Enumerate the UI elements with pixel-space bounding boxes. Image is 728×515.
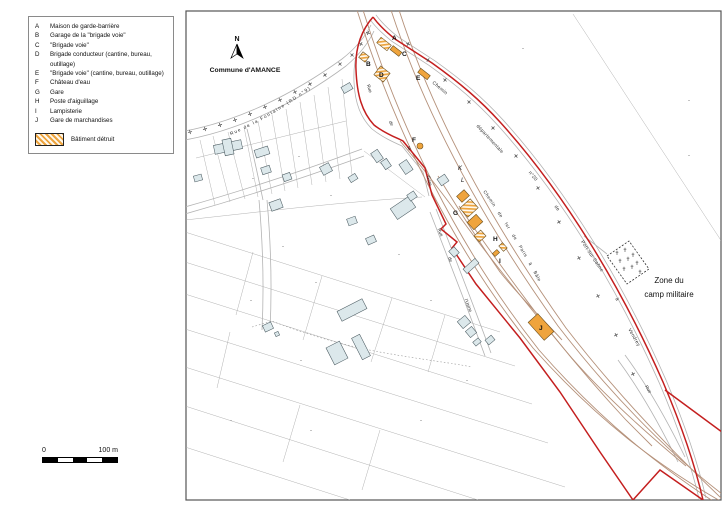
marker-H: H (493, 236, 498, 243)
destroyed-hatch-swatch (35, 133, 64, 146)
legend-key: D (35, 50, 50, 59)
marker-L: L (461, 178, 464, 184)
legend-label: Maison de garde-barrière (50, 22, 169, 31)
legend-box: AMaison de garde-barrière BGarage de la … (28, 16, 174, 154)
legend-key: I (35, 107, 50, 116)
legend-item: BGarage de la "brigade voie" (35, 31, 169, 40)
destroyed-label: Bâtiment détruit (71, 136, 114, 143)
zone-camp-line2: camp militaire (644, 290, 694, 299)
legend-item: AMaison de garde-barrière (35, 22, 169, 31)
legend-label: Poste d'aiguillage (50, 97, 169, 106)
zone-camp-line1: Zone du (654, 276, 683, 285)
legend-item: JGare de marchandises (35, 116, 169, 125)
scale-bar: 0 100 m (42, 447, 118, 463)
legend-key: A (35, 22, 50, 31)
legend-item: HPoste d'aiguillage (35, 97, 169, 106)
legend-key: G (35, 88, 50, 97)
legend-item: C"Brigade voie" (35, 41, 169, 50)
legend-label: "Brigade voie" (50, 41, 169, 50)
map-document: N Commune d'AMANCE Rue de la Fontaine (R… (0, 0, 728, 515)
legend-destroyed-row: Bâtiment détruit (35, 133, 169, 146)
legend-item: E"Brigade voie" (cantine, bureau, outill… (35, 69, 169, 78)
marker-I: I (499, 258, 501, 265)
legend-label: Garage de la "brigade voie" (50, 31, 169, 40)
commune-label: Commune d'AMANCE (210, 67, 281, 74)
legend-item: FChâteau d'eau (35, 78, 169, 87)
legend-label: Lampisterie (50, 107, 169, 116)
marker-C: C (402, 51, 407, 58)
legend-label: Château d'eau (50, 78, 169, 87)
scale-start: 0 (42, 447, 46, 454)
legend-label: "Brigade voie" (cantine, bureau, outilla… (50, 69, 169, 78)
marker-E: E (416, 75, 421, 82)
north-label: N (234, 36, 239, 43)
legend-item: GGare (35, 88, 169, 97)
building-F-water-tower (417, 143, 423, 149)
legend-key: H (35, 97, 50, 106)
scale-bar-graphic (42, 457, 118, 463)
legend-label: Gare (50, 88, 169, 97)
marker-A: A (392, 35, 397, 42)
legend-item: DBrigade conducteur (cantine, bureau, ou… (35, 50, 169, 69)
legend-label: Brigade conducteur (cantine, bureau, out… (50, 50, 162, 69)
marker-D: D (379, 72, 384, 79)
legend-key: J (35, 116, 50, 125)
legend-key: C (35, 41, 50, 50)
legend-key: F (35, 78, 50, 87)
marker-F: F (412, 137, 416, 144)
legend-key: E (35, 69, 50, 78)
marker-J: J (539, 325, 543, 332)
legend-label: Gare de marchandises (50, 116, 169, 125)
legend-item: ILampisterie (35, 107, 169, 116)
marker-G: G (453, 210, 458, 217)
legend-key: B (35, 31, 50, 40)
marker-B: B (366, 61, 371, 68)
scale-end: 100 m (99, 447, 118, 454)
